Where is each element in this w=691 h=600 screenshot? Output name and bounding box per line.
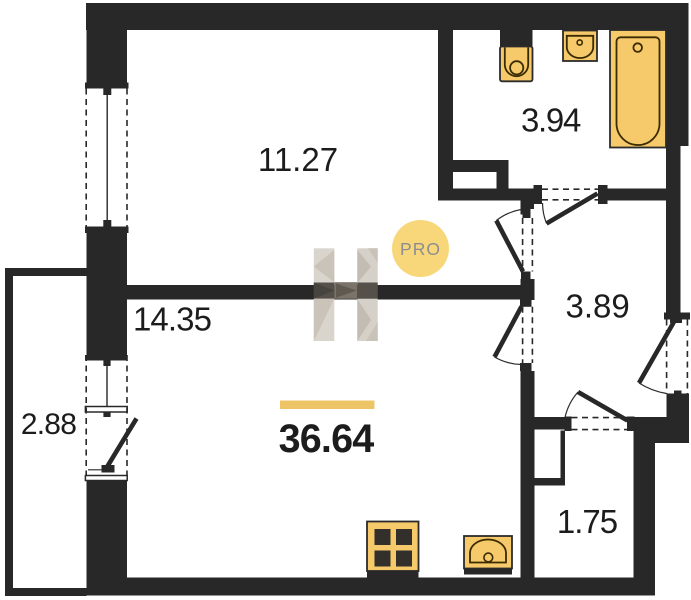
svg-text:3.89: 3.89 bbox=[565, 288, 629, 325]
svg-text:11.27: 11.27 bbox=[258, 141, 338, 178]
svg-text:36.64: 36.64 bbox=[279, 417, 375, 461]
svg-text:3.94: 3.94 bbox=[521, 102, 581, 139]
svg-text:PRO: PRO bbox=[400, 239, 441, 259]
svg-text:2.88: 2.88 bbox=[21, 408, 76, 441]
svg-text:1.75: 1.75 bbox=[557, 503, 617, 540]
svg-text:14.35: 14.35 bbox=[133, 301, 211, 338]
